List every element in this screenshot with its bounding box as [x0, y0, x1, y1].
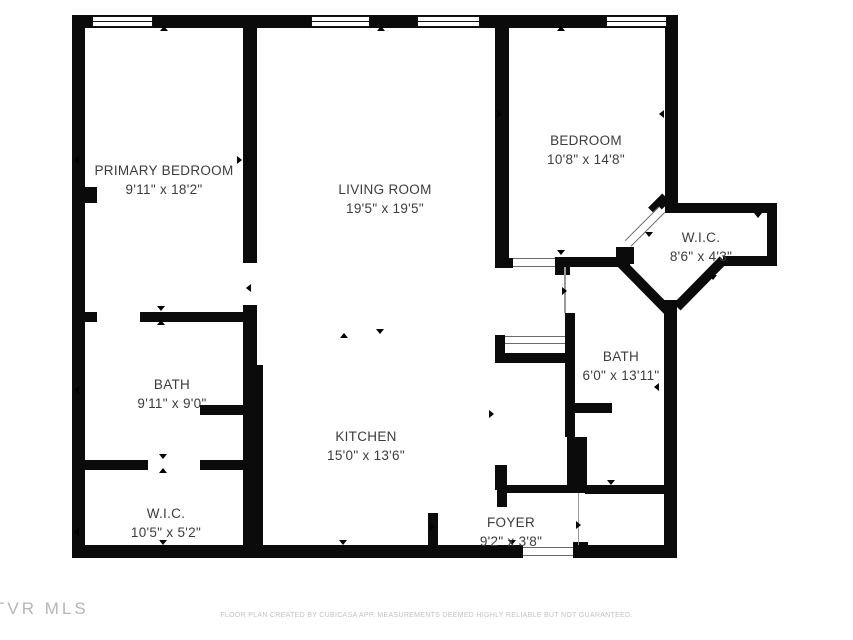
tick [237, 156, 242, 164]
room-label-bath-left: BATH 9'11" x 9'0" [137, 375, 206, 413]
wall-primary-divider-lower [243, 305, 257, 365]
room-dimensions: 19'5" x 19'5" [338, 199, 431, 218]
wall-stub [495, 258, 513, 268]
wall-outer-right-lower [664, 300, 677, 558]
tick [159, 468, 167, 473]
wall-outer-left [72, 15, 85, 558]
room-name: W.I.C. [131, 504, 201, 523]
wall-stub [555, 257, 570, 275]
tick [562, 287, 567, 295]
tick [339, 540, 347, 545]
wall-bedroom-right [665, 15, 678, 213]
window-living-room-1 [311, 16, 370, 27]
tick [754, 213, 762, 218]
room-dimensions: 6'0" x 13'11" [583, 366, 660, 385]
tick [159, 454, 167, 459]
room-label-primary-bedroom: PRIMARY BEDROOM 9'11" x 18'2" [94, 161, 233, 199]
room-dimensions: 8'6" x 4'3" [670, 247, 732, 266]
room-dimensions: 10'5" x 5'2" [131, 523, 201, 542]
room-name: W.I.C. [670, 228, 732, 247]
wall-primary-divider [243, 15, 257, 263]
tick [74, 156, 79, 164]
tick [74, 386, 79, 394]
tick [246, 284, 251, 292]
wall-diagonal-hall [616, 258, 672, 315]
wall-bath-right-bottom [585, 485, 672, 494]
room-dimensions: 9'11" x 18'2" [94, 180, 233, 199]
wall-living-bedroom-divider [495, 15, 509, 263]
room-dimensions: 10'8" x 14'8" [547, 150, 625, 169]
tick [377, 26, 385, 31]
tick [160, 26, 168, 31]
wall-wic-left-top-b [200, 460, 243, 470]
floor-plan-canvas: PRIMARY BEDROOM 9'11" x 18'2" LIVING ROO… [0, 0, 853, 640]
room-label-foyer: FOYER 9'2" x 3'8" [480, 513, 542, 551]
room-dimensions: 15'0" x 13'6" [327, 446, 405, 465]
tick [607, 480, 615, 485]
tick [709, 275, 717, 280]
tick [376, 329, 384, 334]
window-living-room-2 [417, 16, 480, 27]
tick [340, 333, 348, 338]
room-dimensions: 9'2" x 3'8" [480, 532, 542, 551]
room-name: BEDROOM [547, 131, 625, 150]
tick [489, 410, 494, 418]
room-name: PRIMARY BEDROOM [94, 161, 233, 180]
room-label-wic-right: W.I.C. 8'6" x 4'3" [670, 228, 732, 266]
room-label-living-room: LIVING ROOM 19'5" x 19'5" [338, 180, 431, 218]
tick [74, 528, 79, 536]
wall-foyer-north [497, 485, 589, 493]
door-bedroom [513, 258, 555, 267]
wall-outer-bottom-left [72, 545, 523, 558]
door-leaf-foyer [578, 493, 579, 545]
room-label-bedroom: BEDROOM 10'8" x 14'8" [547, 131, 625, 169]
door-hall-closet [505, 336, 565, 344]
disclaimer-text: FLOOR PLAN CREATED BY CUBICASA APP. MEAS… [220, 612, 632, 619]
tick [497, 110, 502, 118]
wall-kitchen-west [243, 365, 263, 547]
tick [157, 320, 165, 325]
tick [557, 26, 565, 31]
tick [157, 306, 165, 311]
wall-wic-top [670, 203, 777, 213]
wall-chase-block [567, 437, 587, 488]
wall-stub [497, 493, 507, 507]
room-name: KITCHEN [327, 427, 405, 446]
room-name: FOYER [480, 513, 542, 532]
wall-closet-bottom [495, 353, 570, 363]
wall-stub [85, 312, 97, 322]
wall-stub [570, 403, 612, 413]
room-label-bath-right: BATH 6'0" x 13'11" [583, 347, 660, 385]
wall-bath-left-top [140, 312, 243, 322]
room-name: BATH [583, 347, 660, 366]
tick [557, 250, 565, 255]
room-label-kitchen: KITCHEN 15'0" x 13'6" [327, 427, 405, 465]
window-primary-bedroom [92, 16, 153, 27]
tick [659, 110, 664, 118]
room-dimensions: 9'11" x 9'0" [137, 394, 206, 413]
wall-bath-right-left [565, 313, 575, 437]
wall-entry-cap [573, 542, 588, 558]
tick [430, 523, 435, 531]
tick [645, 232, 653, 237]
mls-watermark: TVR MLS [0, 599, 89, 619]
room-label-wic-left: W.I.C. 10'5" x 5'2" [131, 504, 201, 542]
window-bedroom [606, 16, 667, 27]
door-wic-diagonal [625, 206, 665, 246]
room-name: BATH [137, 375, 206, 394]
wall-wic-left-top-a [85, 460, 148, 470]
tick [576, 521, 581, 529]
wall-stub [495, 335, 505, 353]
wall-outer-bottom-right [573, 545, 674, 558]
room-name: LIVING ROOM [338, 180, 431, 199]
